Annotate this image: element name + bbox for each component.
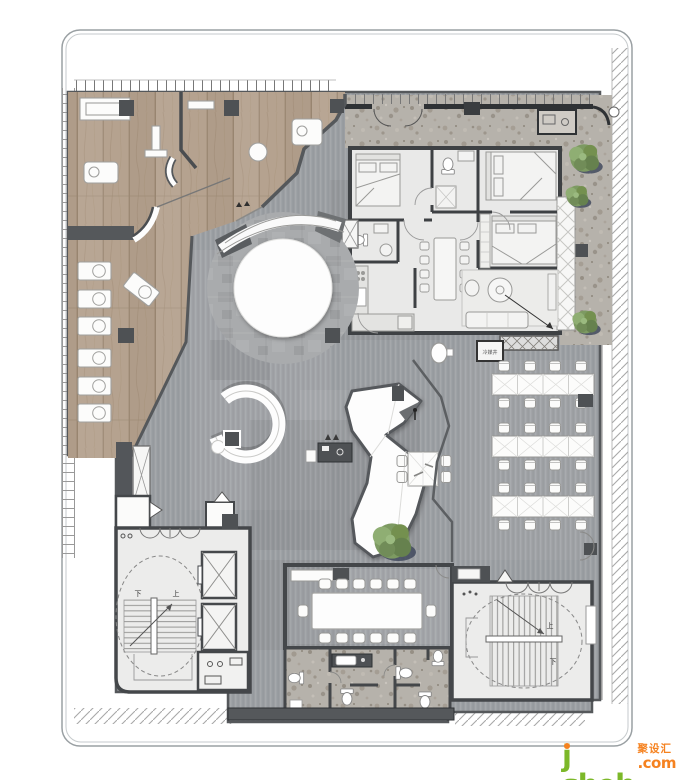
conference-room xyxy=(285,565,452,648)
sofa xyxy=(466,312,528,328)
stair-up-label: 上 xyxy=(547,621,554,630)
wall-block xyxy=(464,102,480,115)
column xyxy=(119,100,134,116)
bed xyxy=(486,152,556,200)
column xyxy=(578,394,593,407)
stair-down-label: 下 xyxy=(135,590,142,598)
floor-plan-page: 冷媒井 xyxy=(0,0,676,780)
column xyxy=(224,100,239,116)
living-room xyxy=(462,270,558,329)
vanity xyxy=(332,654,372,667)
display-shelf xyxy=(188,101,214,109)
meeting-table xyxy=(408,452,438,486)
sink xyxy=(290,700,302,708)
watermark-brand-j: j xyxy=(562,742,570,771)
restrooms xyxy=(285,648,450,712)
stair-treads xyxy=(124,600,196,652)
show-flat: 冷媒井 xyxy=(342,148,575,361)
conference-table xyxy=(312,593,422,629)
utility-shaft-box: 冷媒井 xyxy=(477,341,503,361)
column xyxy=(330,99,344,113)
stair-up-label: 上 xyxy=(173,589,180,598)
round-feature xyxy=(234,239,332,337)
low-wall xyxy=(68,226,134,240)
coffee-table xyxy=(488,278,512,302)
stair-door xyxy=(586,606,596,644)
watermark-chinese: 聚设汇 xyxy=(637,744,676,755)
bed xyxy=(492,216,556,264)
watermark-logo: jsheh 聚设汇 .com xyxy=(562,742,676,780)
column xyxy=(574,244,588,257)
round-stool xyxy=(249,143,267,161)
elevator xyxy=(198,604,236,650)
bottom-edge xyxy=(228,708,454,720)
utility-room xyxy=(198,652,248,690)
utility-shaft-label: 冷媒井 xyxy=(482,349,497,356)
floor-plan-drawing: 冷媒井 xyxy=(0,0,676,780)
rooftop-equipment-box xyxy=(538,110,576,134)
watermark-tld: .com xyxy=(637,756,676,771)
bed xyxy=(356,154,400,206)
vestibule xyxy=(116,496,150,528)
stair-east: 上 下 xyxy=(452,566,596,700)
column xyxy=(325,328,340,343)
armchair xyxy=(465,280,479,296)
watermark-brand-rest: sheh xyxy=(562,768,634,780)
column xyxy=(224,431,240,447)
watermark-brand: jsheh xyxy=(562,742,635,780)
elevator xyxy=(198,552,236,598)
column xyxy=(118,328,134,343)
tv-console xyxy=(548,274,556,310)
stair-down-label: 下 xyxy=(550,658,557,666)
display-pedestal xyxy=(152,126,160,152)
column xyxy=(584,543,597,555)
column xyxy=(222,514,238,529)
